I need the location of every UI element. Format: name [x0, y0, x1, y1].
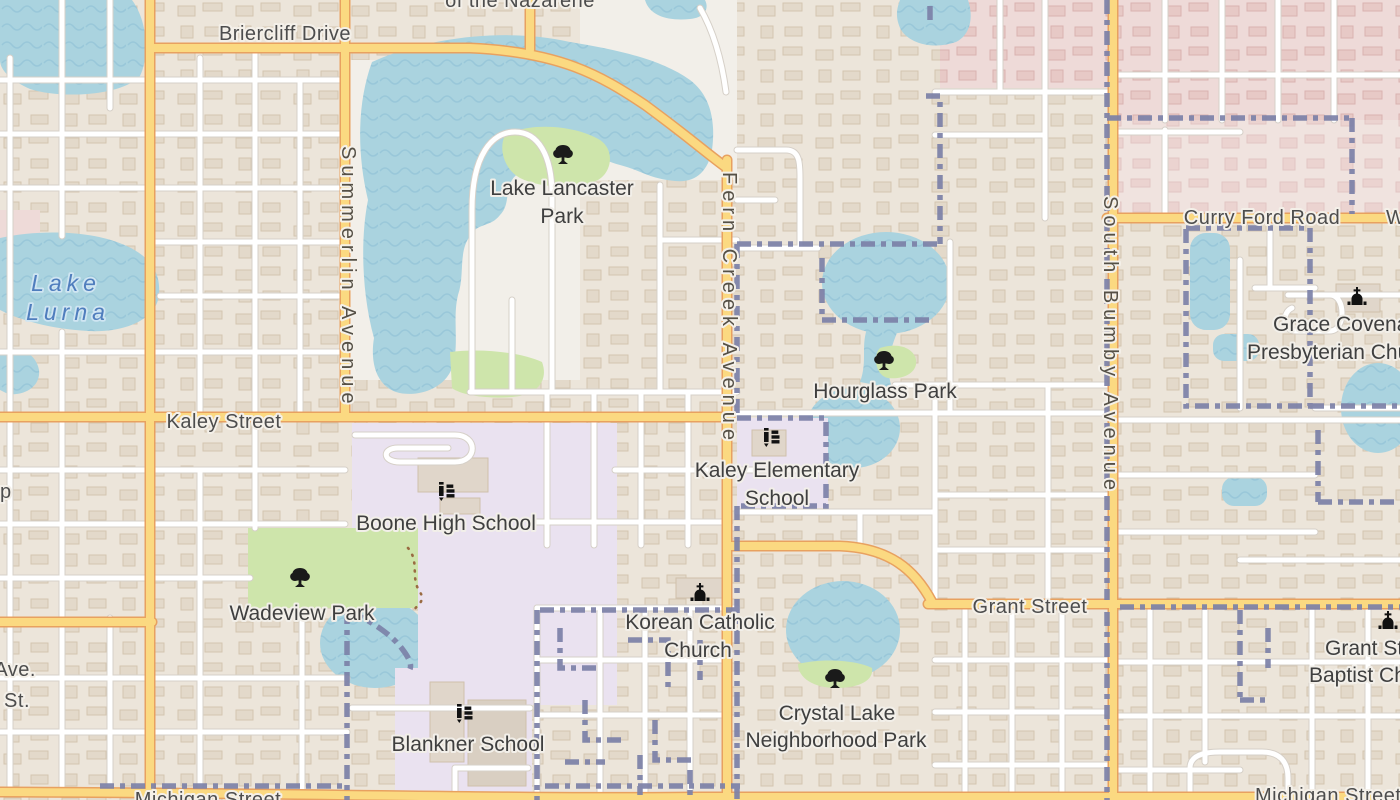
label-kaley-elementary-1: Kaley Elementary — [695, 459, 860, 482]
label-edge-partial-ave: Ave. — [0, 659, 36, 681]
label-michigan-street-left: Michigan Street — [135, 789, 281, 800]
label-crystal-lake-1: Crystal Lake — [779, 702, 896, 725]
label-lake-lurna-1: Lake — [31, 270, 101, 296]
label-edge-partial-st: St. — [4, 690, 30, 712]
label-lake-lancaster-park-1: Lake Lancaster — [490, 177, 634, 200]
label-kaley-street: Kaley Street — [167, 411, 282, 433]
label-lake-lurna-2: Lurna — [26, 299, 110, 325]
label-korean-catholic-2: Church — [664, 639, 732, 662]
label-grant-baptist-2: Baptist Church — [1309, 664, 1400, 687]
label-south-bumby-avenue: South Bumby Avenue — [1099, 196, 1121, 496]
map-svg: Briercliff Drive of the Nazarene Lake La… — [0, 0, 1400, 800]
label-grace-covenant-2: Presbyterian Church — [1247, 341, 1400, 364]
label-briercliff-drive: Briercliff Drive — [219, 23, 351, 45]
label-hourglass-park: Hourglass Park — [813, 380, 957, 403]
label-summerlin-avenue: Summerlin Avenue — [337, 146, 359, 410]
pond-right-tall — [1190, 233, 1230, 330]
label-grant-baptist-1: Grant Street — [1325, 637, 1400, 660]
label-curry-ford-road: Curry Ford Road — [1184, 207, 1340, 229]
label-fern-creek-avenue: Fern Creek Avenue — [718, 172, 740, 446]
label-curry-ford-partial: W — [1386, 207, 1400, 229]
label-grant-street: Grant Street — [973, 596, 1088, 618]
label-lake-lancaster-park-2: Park — [540, 205, 584, 228]
label-crystal-lake-2: Neighborhood Park — [746, 729, 927, 752]
label-michigan-street-right: Michigan Street — [1255, 785, 1400, 800]
label-boone-high-school: Boone High School — [356, 512, 536, 535]
label-wadeview-park: Wadeview Park — [229, 602, 375, 625]
label-kaley-elementary-2: School — [745, 487, 809, 510]
label-top-partial: of the Nazarene — [445, 0, 595, 12]
pond-right-lower — [1222, 477, 1267, 506]
wadeview-park-green — [248, 528, 418, 608]
label-blankner-school: Blankner School — [392, 733, 545, 756]
label-grace-covenant-1: Grace Covenant — [1273, 313, 1400, 336]
label-korean-catholic-1: Korean Catholic — [625, 611, 774, 634]
map-canvas[interactable]: Briercliff Drive of the Nazarene Lake La… — [0, 0, 1400, 800]
label-edge-partial-p: p — [0, 481, 12, 503]
